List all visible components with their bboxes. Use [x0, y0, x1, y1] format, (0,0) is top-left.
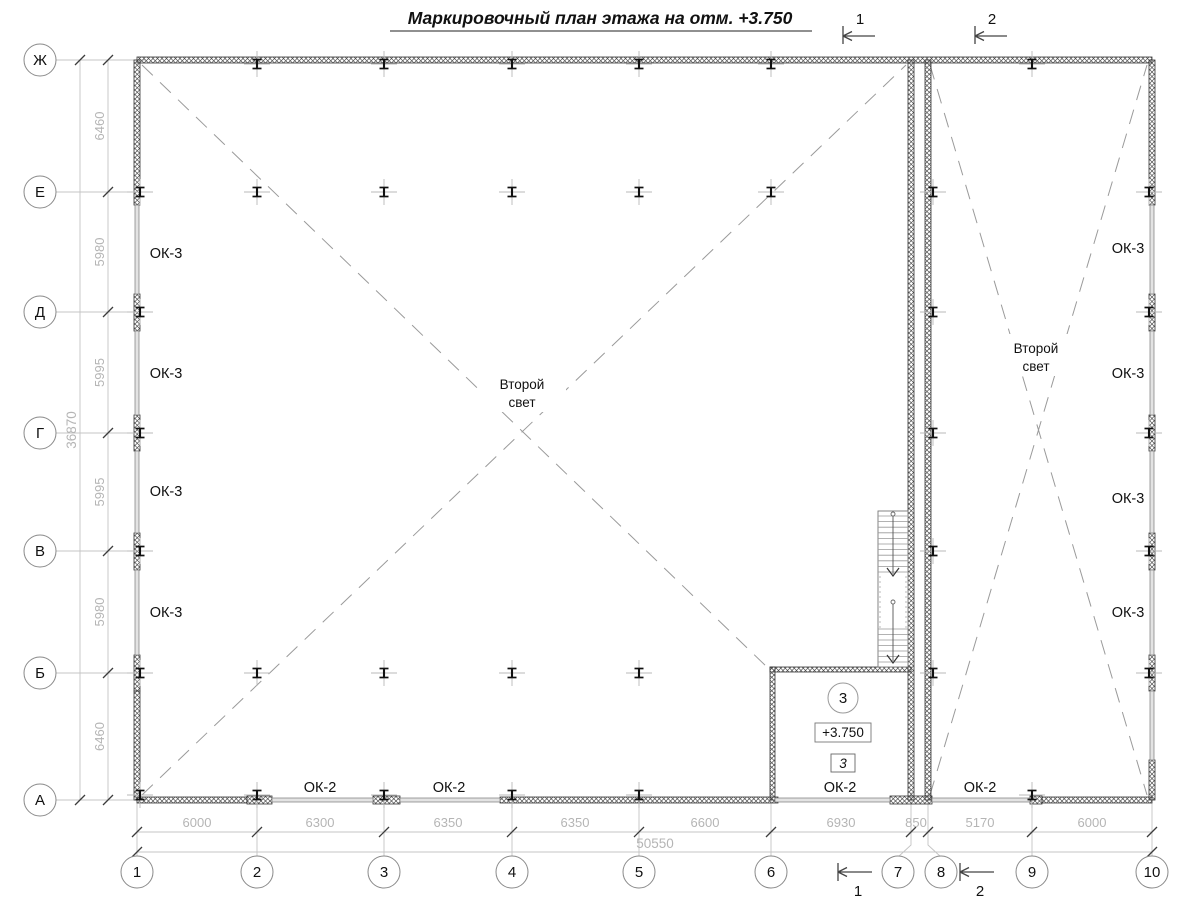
plan-canvas: Ж Е Д Г В Б А 1 2 3 4 5 6 7 8 9 10 6460 … — [0, 0, 1200, 900]
ok3-label-right: ОК-3 — [1112, 241, 1145, 257]
dim-left-bay: 5980 — [92, 238, 107, 267]
col-axis-label: 7 — [894, 864, 902, 881]
dim-texts-bottom: 6000 6300 6350 6350 6600 6930 850 5170 6… — [183, 815, 1107, 851]
row-axis-bubble: В — [24, 535, 56, 567]
room-mark: 3 — [839, 756, 847, 771]
room3-annotations: 3 +3.750 3 — [815, 683, 871, 772]
ok2-label-room: ОК-2 — [824, 780, 857, 796]
ok3-label-right: ОК-3 — [1112, 605, 1145, 621]
row-axis-label: Ж — [33, 52, 47, 69]
section-mark-label: 2 — [988, 11, 996, 28]
columns-layer — [127, 51, 1162, 808]
row-axis-label: Б — [35, 665, 45, 682]
walls-layer — [134, 57, 1155, 804]
dim-bottom-bay: 6000 — [183, 815, 212, 830]
col-axis-bubble: 2 — [241, 856, 273, 888]
col-axis-label: 4 — [508, 864, 516, 881]
dimension-lines — [56, 60, 1152, 857]
section-marks: 1 2 1 2 — [838, 11, 1007, 900]
col-axis-label: 5 — [635, 864, 643, 881]
col-axis-bubble: 6 — [755, 856, 787, 888]
section-mark-label: 1 — [856, 11, 864, 28]
col-axis-bubble: 8 — [925, 856, 957, 888]
row-axis-bubble: Ж — [24, 44, 56, 76]
row-axis-label: Е — [35, 184, 45, 201]
col-axis-bubble: 4 — [496, 856, 528, 888]
void-cross-lines — [142, 65, 1147, 795]
col-axis-bubble: 10 — [1136, 856, 1168, 888]
row-axis-bubble: Б — [24, 657, 56, 689]
section-mark-label: 2 — [976, 883, 984, 900]
dim-bottom-bay: 6600 — [691, 815, 720, 830]
dim-left-bay: 6460 — [92, 722, 107, 751]
drawing-title: Маркировочный план этажа на отм. +3.750 — [408, 8, 793, 28]
col-axis-label: 2 — [253, 864, 261, 881]
ok3-label-left: ОК-3 — [150, 246, 183, 262]
dimension-ticks — [75, 55, 1157, 857]
section-mark-1-bottom: 1 — [838, 863, 872, 900]
section-mark-label: 1 — [854, 883, 862, 900]
col-axis-label: 6 — [767, 864, 775, 881]
col-axis-bubble: 7 — [882, 856, 914, 888]
room-number: 3 — [839, 690, 847, 707]
dim-left-bay: 5995 — [92, 358, 107, 387]
col-axis-bubble: 3 — [368, 856, 400, 888]
dim-bottom-bay: 6300 — [306, 815, 335, 830]
dim-bottom-total: 50550 — [636, 836, 674, 851]
col-axis-bubble: 5 — [623, 856, 655, 888]
row-axis-bubble: А — [24, 784, 56, 816]
windows-layer — [135, 205, 1154, 802]
dim-left-bay: 5995 — [92, 478, 107, 507]
col-axis-label: 3 — [380, 864, 388, 881]
second-light-right-line2: свет — [1022, 359, 1049, 374]
dim-bottom-bay: 850 — [905, 815, 927, 830]
dim-bottom-bay: 5170 — [966, 815, 995, 830]
second-light-labels: Второй свет Второй свет — [500, 341, 1059, 410]
second-light-right-line1: Второй — [1014, 341, 1059, 356]
ok2-label-bottom: ОК-2 — [304, 780, 337, 796]
second-light-main-line2: свет — [508, 395, 535, 410]
dim-left-bay: 6460 — [92, 112, 107, 141]
row-axis-bubble: Д — [24, 296, 56, 328]
col-axis-bubble: 9 — [1016, 856, 1048, 888]
ok3-label-left: ОК-3 — [150, 366, 183, 382]
second-light-main-line1: Второй — [500, 377, 545, 392]
ok3-label-right: ОК-3 — [1112, 491, 1145, 507]
dim-bottom-bay: 6930 — [827, 815, 856, 830]
row-axis-label: А — [35, 792, 45, 809]
dim-left-total: 36870 — [64, 411, 79, 449]
ok3-label-left: ОК-3 — [150, 605, 183, 621]
dim-left-bay: 5980 — [92, 598, 107, 627]
row-axis-label: В — [35, 543, 45, 560]
row-axis-bubbles: Ж Е Д Г В Б А — [24, 44, 56, 816]
floor-plan-drawing: Ж Е Д Г В Б А 1 2 3 4 5 6 7 8 9 10 6460 … — [0, 0, 1200, 900]
dim-texts-left: 6460 5980 5995 5995 5980 6460 36870 — [64, 112, 107, 751]
dim-bottom-bay: 6000 — [1078, 815, 1107, 830]
drawing-title-group: Маркировочный план этажа на отм. +3.750 — [390, 8, 812, 31]
col-axis-label: 8 — [937, 864, 945, 881]
col-axis-bubble: 1 — [121, 856, 153, 888]
row-axis-label: Д — [35, 304, 45, 321]
ok3-label-right: ОК-3 — [1112, 366, 1145, 382]
ok2-label-bottom: ОК-2 — [964, 780, 997, 796]
col-axis-label: 10 — [1144, 864, 1161, 881]
row-axis-bubble: Е — [24, 176, 56, 208]
row-axis-label: Г — [36, 425, 44, 442]
row-axis-bubble: Г — [24, 417, 56, 449]
ok3-label-left: ОК-3 — [150, 484, 183, 500]
ok2-label-bottom: ОК-2 — [433, 780, 466, 796]
room-level: +3.750 — [822, 725, 864, 740]
dim-bottom-bay: 6350 — [434, 815, 463, 830]
section-mark-1-top: 1 — [843, 11, 875, 44]
col-axis-bubbles: 1 2 3 4 5 6 7 8 9 10 — [121, 856, 1168, 888]
dim-bottom-bay: 6350 — [561, 815, 590, 830]
window-labels: ОК-3 ОК-3 ОК-3 ОК-3 ОК-3 ОК-3 ОК-3 ОК-3 … — [150, 241, 1145, 796]
col-axis-label: 9 — [1028, 864, 1036, 881]
col-axis-label: 1 — [133, 864, 141, 881]
section-mark-2-top: 2 — [975, 11, 1007, 44]
section-mark-2-bottom: 2 — [960, 863, 994, 900]
staircase — [878, 511, 908, 667]
